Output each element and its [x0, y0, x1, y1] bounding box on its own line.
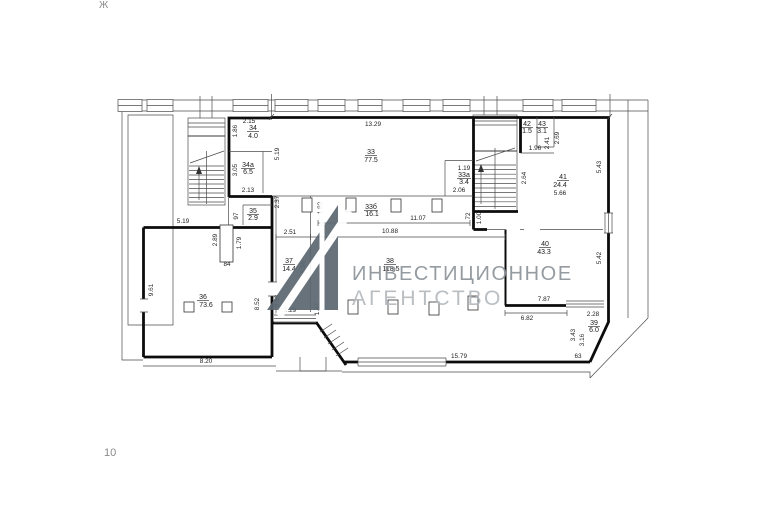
room-39-number: 39	[590, 320, 598, 327]
left-staircase	[188, 118, 225, 205]
room-37-number: 37	[285, 258, 293, 265]
dim-3-05: 3.05	[232, 163, 239, 176]
room-33a-number: 33а	[458, 172, 470, 179]
stair-arrow	[196, 166, 202, 174]
dim-8-52: 8.52	[254, 297, 261, 310]
room-39-area: 6.0	[589, 327, 599, 334]
room-41-number: 41	[559, 174, 567, 181]
room-35-area: 2.9	[248, 215, 258, 222]
dim-72: 72	[465, 212, 472, 220]
room-34-number: 34	[249, 125, 257, 132]
top-windows	[118, 94, 610, 118]
dim-2-15: 2.15	[243, 118, 256, 125]
corner-label-bottom: 10	[104, 447, 116, 459]
dim-1-79: 1.79	[236, 236, 243, 249]
window	[562, 100, 596, 112]
dim-7-87: 7.87	[538, 296, 551, 303]
room-34-area: 4.0	[248, 133, 258, 140]
room-42-number: 42	[523, 121, 531, 128]
blueprint-page: 33 77.5 33а 3.4 33б 16.1 34 4.0 34а 6.5 …	[0, 0, 770, 510]
window	[275, 100, 308, 112]
dim-2-37: 2.37	[274, 195, 281, 208]
window-right-wall	[603, 213, 613, 233]
room-34a-area: 6.5	[243, 169, 253, 176]
dim-2-69: 2.69	[554, 131, 561, 144]
dim-63: 63	[574, 353, 582, 360]
window	[358, 100, 382, 112]
dim-2-89: 2.89	[212, 233, 219, 246]
dim-2-64: 2.64	[521, 171, 528, 184]
corner-label-top: Ж	[99, 0, 109, 11]
window	[233, 100, 268, 112]
room-40-area: 43.3	[537, 249, 551, 256]
room-41-area: 24.4	[553, 182, 567, 189]
window	[147, 100, 173, 112]
window-bottom	[358, 357, 446, 368]
room-35-number: 35	[249, 208, 257, 215]
dim-13-29: 13.29	[365, 121, 381, 128]
window-room36-left	[140, 299, 149, 312]
dim-15-79: 15.79	[451, 353, 467, 360]
dim-8-20: 8.20	[200, 358, 213, 365]
dim-10-88: 10.88	[382, 228, 398, 235]
dim-2-06: 2.06	[453, 187, 466, 194]
room-42-area: 1.5	[522, 128, 532, 135]
dim-5-19-top: 5.19	[177, 218, 190, 225]
dim-1-00: 1.00	[476, 211, 483, 224]
room-33b-area: 16.1	[365, 211, 379, 218]
dim-5-66: 5.66	[554, 190, 567, 197]
dim-2-51: 2.51	[284, 229, 297, 236]
dim-9-61: 9.61	[148, 283, 155, 296]
room-33b-number: 33б	[365, 203, 377, 211]
window	[318, 100, 345, 112]
dim-5-42: 5.42	[596, 251, 603, 264]
watermark-line2: АГЕНТСТВО	[352, 287, 503, 310]
room-33-area: 77.5	[364, 157, 378, 164]
dim-11-07: 11.07	[410, 215, 426, 222]
door-room36-right	[268, 282, 278, 296]
right-staircase	[473, 115, 517, 211]
room-33-number: 33	[367, 149, 375, 156]
dim-1-19: 1.19	[458, 165, 471, 172]
window	[403, 100, 430, 112]
room-43-area: 3.1	[537, 128, 547, 135]
dim-2-13: 2.13	[242, 187, 255, 194]
room-40-number: 40	[541, 241, 549, 248]
dim-84: 84	[223, 261, 231, 268]
window	[118, 100, 142, 112]
dim-6-82: 6.82	[521, 315, 534, 322]
room-36-number: 36	[199, 294, 207, 301]
dim-5-19-left: 5.19	[274, 147, 281, 160]
floor-plan: 33 77.5 33а 3.4 33б 16.1 34 4.0 34а 6.5 …	[0, 0, 770, 510]
watermark-line1: ИНВЕСТИЦИОННОЕ	[352, 263, 573, 285]
dim-1-96: 1.96	[529, 145, 542, 152]
room-43-number: 43	[538, 121, 546, 128]
dim-3-43: 3.43	[570, 328, 577, 341]
dim-2-28: 2.28	[587, 311, 600, 318]
room-36-area: 73.6	[199, 302, 213, 309]
room-33a-area: 3.4	[459, 179, 469, 186]
window	[443, 100, 470, 112]
dim-1-86: 1.86	[232, 124, 239, 137]
agency-logo-mark	[267, 200, 350, 316]
dim-5-43: 5.43	[596, 160, 603, 173]
room-34a-number: 34а	[242, 162, 254, 169]
window	[523, 100, 553, 112]
dim-97: 97	[233, 212, 240, 220]
dim-3-16: 3.16	[579, 333, 586, 346]
window-room39	[566, 300, 604, 309]
dim-2-41: 2.41	[544, 136, 551, 149]
